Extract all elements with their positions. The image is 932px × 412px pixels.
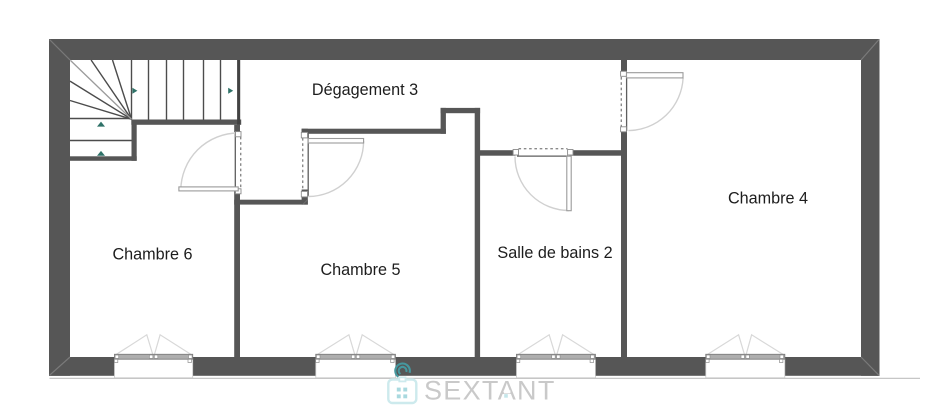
svg-text:SEXTANT: SEXTANT — [424, 375, 556, 405]
svg-text:Chambre 6: Chambre 6 — [112, 245, 192, 263]
svg-text:Chambre 5: Chambre 5 — [320, 261, 400, 279]
svg-text:Dégagement 3: Dégagement 3 — [312, 81, 418, 99]
svg-text:Salle de bains 2: Salle de bains 2 — [497, 244, 612, 262]
svg-text:Chambre 4: Chambre 4 — [728, 189, 808, 207]
